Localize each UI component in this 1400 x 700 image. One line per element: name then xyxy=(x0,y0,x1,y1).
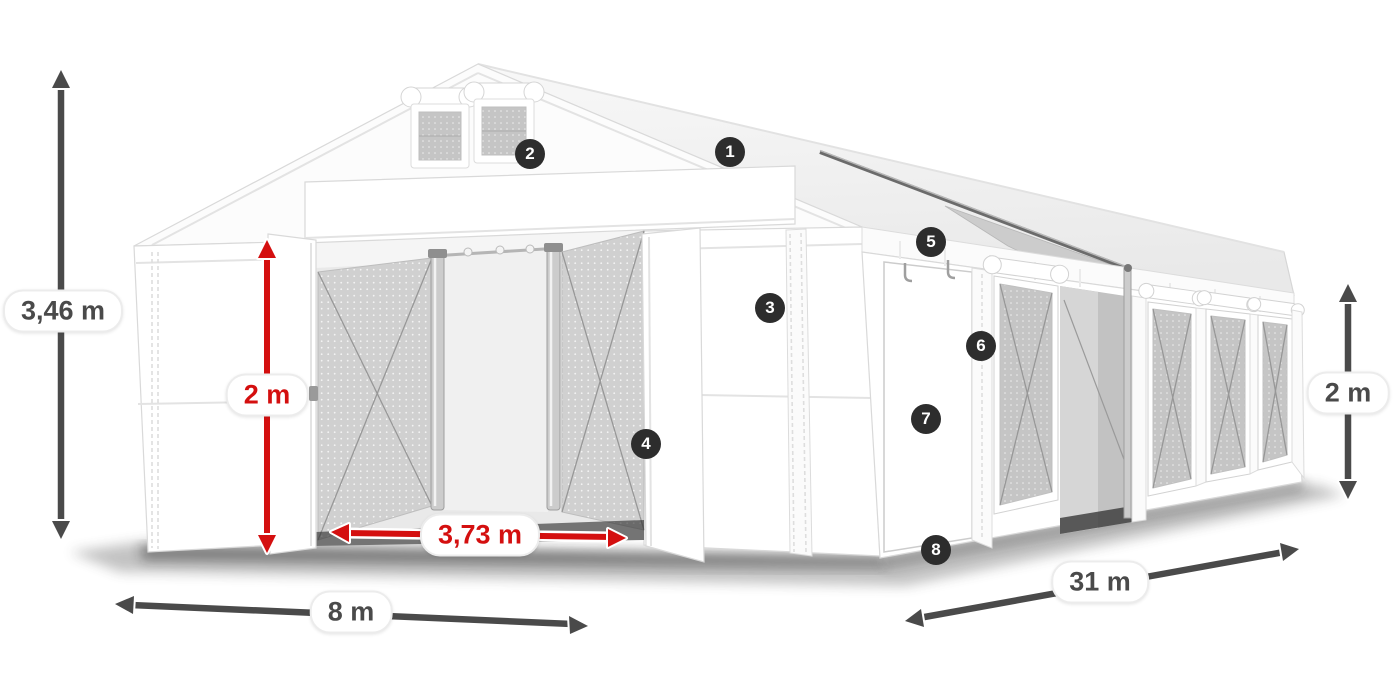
dimension-label-total-height: 3,46 m xyxy=(3,289,123,332)
badge-3-front-wall: 3 xyxy=(755,293,785,323)
dimension-label-front-width: 8 m xyxy=(310,590,393,633)
badge-4-front-door: 4 xyxy=(631,429,661,459)
side-doorway-open xyxy=(1060,264,1132,534)
tent-illustration xyxy=(0,0,1400,700)
side-window-1 xyxy=(982,255,1070,514)
badge-5-valance: 5 xyxy=(916,227,946,257)
dimension-label-door-width: 3,73 m xyxy=(420,513,540,556)
interior-pole-right xyxy=(547,248,560,510)
dimension-label-length: 31 m xyxy=(1051,560,1149,603)
badge-8-groundbar: 8 xyxy=(921,535,951,565)
badge-7-side-door: 7 xyxy=(911,404,941,434)
front-door-opening xyxy=(315,229,644,546)
front-door-leaf-right xyxy=(642,228,704,562)
interior-pole-left xyxy=(431,254,444,510)
badge-1-roof: 1 xyxy=(715,137,745,167)
dimension-label-door-height: 2 m xyxy=(226,373,309,416)
dimension-label-side-height: 2 m xyxy=(1307,371,1390,414)
badge-6-side-window: 6 xyxy=(966,331,996,361)
tent-dimension-diagram: 3,46 m 2 m 3,73 m 8 m 31 m 2 m 1 2 3 4 5… xyxy=(0,0,1400,700)
badge-2-roof-vent: 2 xyxy=(515,139,545,169)
